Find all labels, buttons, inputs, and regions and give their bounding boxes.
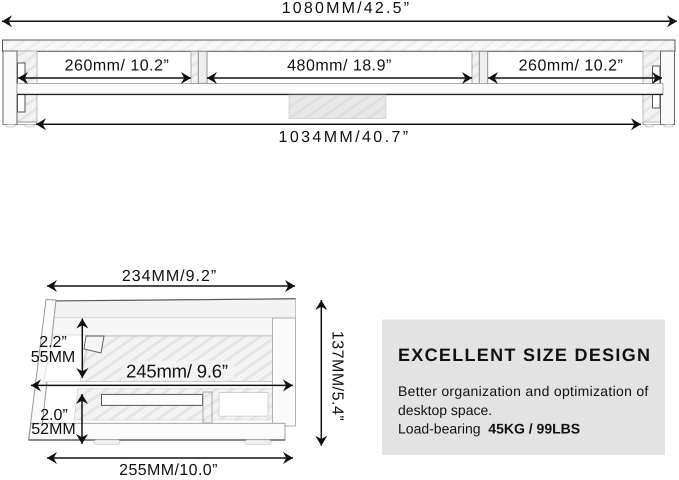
svg-text:255MM/10.0”: 255MM/10.0”	[119, 462, 218, 479]
svg-text:52MM: 52MM	[31, 421, 75, 438]
svg-text:1080MM/42.5”: 1080MM/42.5”	[282, 0, 412, 17]
svg-text:Better organization and optimi: Better organization and optimization of	[398, 383, 649, 399]
svg-text:260mm/ 10.2”: 260mm/ 10.2”	[65, 58, 170, 75]
svg-text:480mm/ 18.9”: 480mm/ 18.9”	[287, 58, 392, 75]
svg-text:EXCELLENT SIZE DESIGN: EXCELLENT SIZE DESIGN	[398, 345, 651, 365]
svg-text:260mm/ 10.2”: 260mm/ 10.2”	[519, 58, 624, 75]
svg-text:137MM/5.4”: 137MM/5.4”	[329, 331, 346, 421]
svg-text:245mm/ 9.6”: 245mm/ 9.6”	[126, 361, 228, 382]
svg-text:234MM/9.2”: 234MM/9.2”	[122, 268, 217, 285]
svg-text:Load-bearing 45KG / 99LBS: Load-bearing 45KG / 99LBS	[398, 421, 580, 437]
svg-text:desktop space.: desktop space.	[398, 402, 492, 418]
svg-text:55MM: 55MM	[31, 349, 75, 366]
svg-text:1034MM/40.7”: 1034MM/40.7”	[279, 129, 411, 146]
